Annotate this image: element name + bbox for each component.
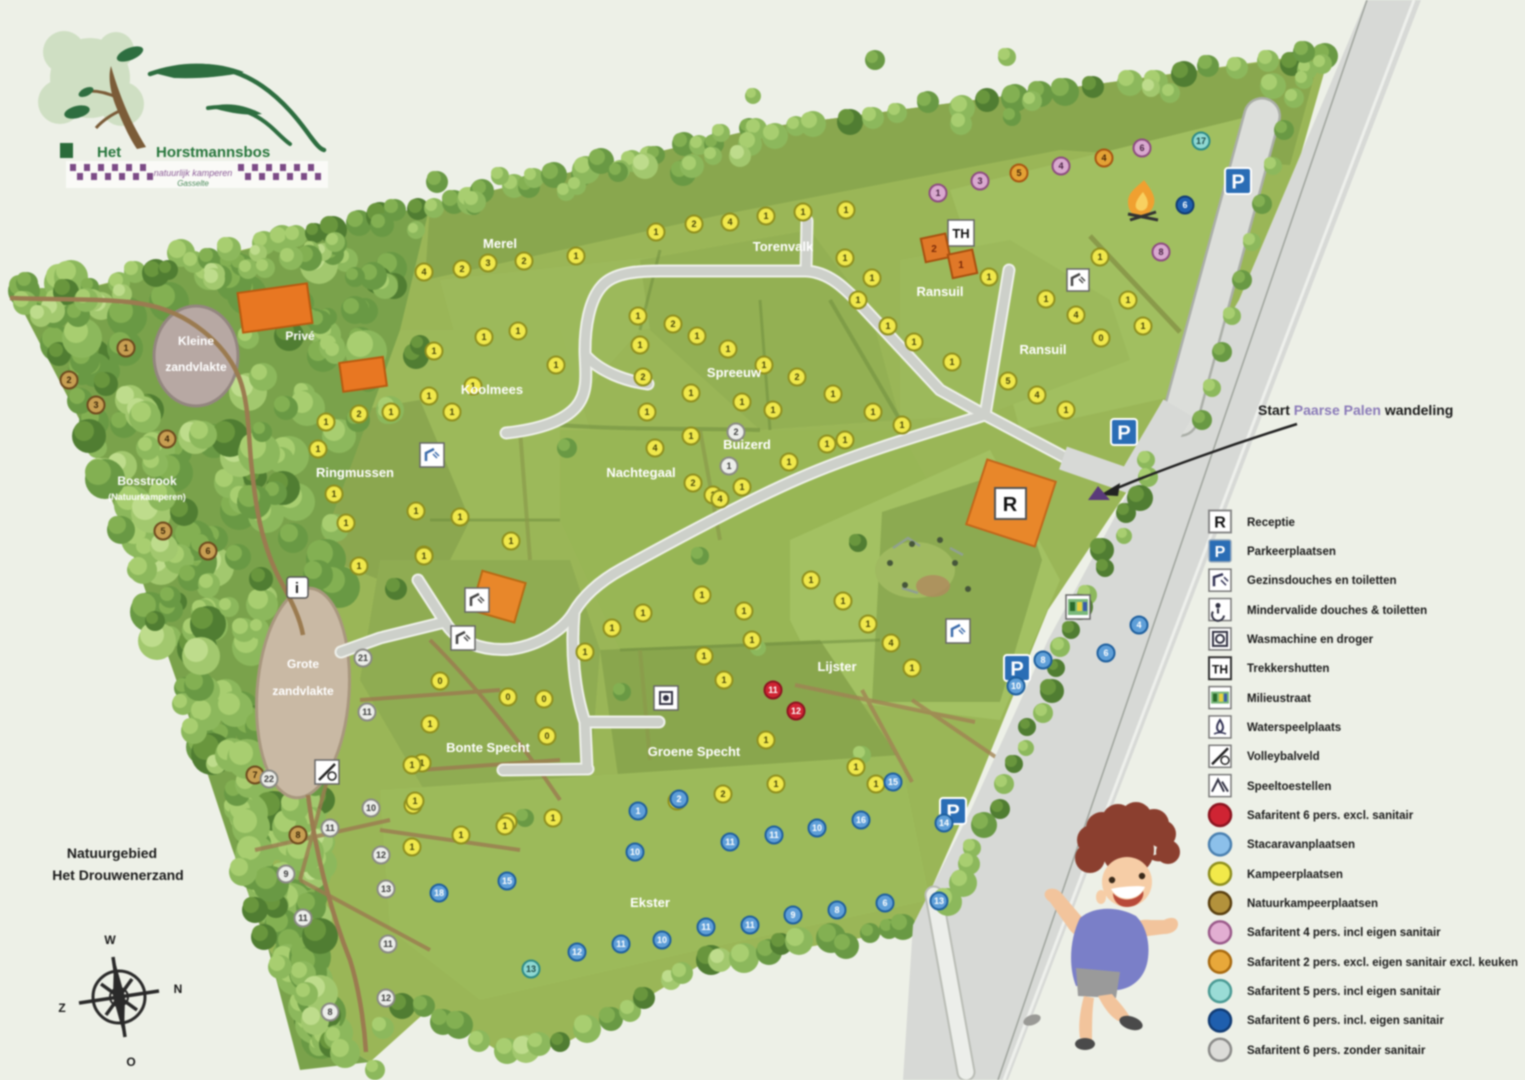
svg-text:Koolmees: Koolmees [461,382,523,397]
svg-text:Stacaravanplaatsen: Stacaravanplaatsen [1247,839,1355,851]
svg-text:2: 2 [733,427,738,437]
svg-text:1: 1 [770,405,775,415]
svg-text:1: 1 [635,806,640,816]
svg-text:2: 2 [670,319,675,329]
svg-text:11: 11 [745,920,755,930]
svg-text:Buizerd: Buizerd [723,437,771,452]
svg-text:2: 2 [640,372,645,382]
svg-text:6: 6 [1103,648,1108,658]
svg-text:16: 16 [856,815,866,825]
svg-text:Volleybalveld: Volleybalveld [1247,751,1320,763]
svg-text:(Natuurkamperen): (Natuurkamperen) [108,492,186,502]
svg-text:2: 2 [356,409,361,419]
svg-text:1: 1 [413,506,418,516]
svg-text:1: 1 [426,391,431,401]
svg-text:Safaritent 6 pers. excl. sanit: Safaritent 6 pers. excl. sanitair [1247,810,1414,822]
svg-text:4: 4 [1136,620,1141,630]
svg-text:Groene Specht: Groene Specht [648,744,741,759]
svg-text:1: 1 [688,388,693,398]
svg-text:11: 11 [616,939,626,949]
svg-text:9: 9 [283,869,288,879]
svg-text:2: 2 [690,478,695,488]
svg-text:3: 3 [977,176,982,186]
svg-text:1: 1 [840,596,845,606]
svg-text:Ekster: Ekster [630,895,670,910]
svg-text:4: 4 [717,494,722,504]
svg-text:6: 6 [205,546,210,556]
svg-text:Parkeerplaatsen: Parkeerplaatsen [1247,546,1336,558]
svg-text:17: 17 [1196,136,1206,146]
svg-text:1: 1 [582,647,587,657]
svg-text:Lijster: Lijster [817,659,856,674]
svg-text:1: 1 [958,260,964,271]
svg-text:Natuurkampeerplaatsen: Natuurkampeerplaatsen [1247,898,1378,910]
svg-text:4: 4 [1034,390,1039,400]
svg-text:6: 6 [1139,143,1144,153]
svg-text:TH: TH [1212,662,1228,676]
svg-text:Grote: Grote [287,657,319,671]
svg-text:1: 1 [388,407,393,417]
svg-text:Milieustraat: Milieustraat [1247,693,1311,705]
svg-text:1: 1 [1043,294,1048,304]
svg-text:11: 11 [769,830,779,840]
svg-text:4: 4 [888,638,893,648]
svg-text:1: 1 [726,461,731,471]
svg-text:11: 11 [725,837,735,847]
svg-text:1: 1 [885,321,890,331]
svg-text:P: P [1215,544,1226,561]
svg-text:Start Paarse Palen wandeling: Start Paarse Palen wandeling [1258,402,1453,418]
svg-text:P: P [1231,171,1244,193]
svg-text:0: 0 [544,731,549,741]
svg-text:1: 1 [653,227,658,237]
svg-text:18: 18 [434,888,444,898]
svg-text:4: 4 [1058,161,1063,171]
svg-text:1: 1 [739,397,744,407]
svg-text:2: 2 [676,794,681,804]
svg-text:1: 1 [644,407,649,417]
svg-text:4: 4 [1073,310,1078,320]
svg-text:12: 12 [381,993,391,1003]
svg-text:Ringmussen: Ringmussen [316,465,394,480]
svg-text:11: 11 [325,823,335,833]
svg-text:Privé: Privé [285,329,315,343]
svg-text:1: 1 [1097,252,1102,262]
svg-text:1: 1 [356,561,361,571]
svg-text:1: 1 [949,357,954,367]
svg-text:zandvlakte: zandvlakte [272,684,334,698]
svg-text:1: 1 [739,482,744,492]
svg-text:Safaritent 5 pers. incl eigen: Safaritent 5 pers. incl eigen sanitair [1247,986,1441,998]
svg-text:10: 10 [1011,681,1021,691]
svg-text:1: 1 [842,435,847,445]
svg-text:Bosstrook: Bosstrook [117,474,177,488]
svg-text:Het: Het [97,144,121,161]
svg-text:zandvlakte: zandvlakte [165,360,227,374]
svg-text:1: 1 [763,211,768,221]
svg-text:13: 13 [526,964,536,974]
svg-text:1: 1 [1063,405,1068,415]
svg-text:Merel: Merel [483,236,517,251]
svg-text:Kampeerplaatsen: Kampeerplaatsen [1247,869,1343,881]
svg-text:1: 1 [1140,321,1145,331]
svg-text:1: 1 [786,457,791,467]
svg-text:13: 13 [934,896,944,906]
svg-text:3: 3 [93,400,98,410]
svg-text:15: 15 [888,777,898,787]
svg-text:8: 8 [327,1007,332,1017]
svg-text:5: 5 [160,526,165,536]
svg-text:1: 1 [855,295,860,305]
svg-text:1: 1 [824,439,829,449]
svg-text:1: 1 [842,253,847,263]
svg-text:12: 12 [572,947,582,957]
svg-text:1: 1 [123,343,128,353]
svg-text:14: 14 [939,818,949,828]
svg-text:Horstmannsbos: Horstmannsbos [156,144,270,161]
svg-text:1: 1 [609,623,614,633]
svg-text:W: W [104,933,116,947]
svg-text:Safaritent 4 pers. incl eigen: Safaritent 4 pers. incl eigen sanitair [1247,927,1441,939]
svg-text:Nachtegaal: Nachtegaal [606,465,675,480]
svg-text:10: 10 [657,935,667,945]
svg-text:10: 10 [630,847,640,857]
svg-text:3: 3 [485,258,490,268]
svg-text:1: 1 [323,417,328,427]
svg-text:1: 1 [763,735,768,745]
svg-text:natuurlijk kamperen: natuurlijk kamperen [154,168,233,178]
svg-text:Kleine: Kleine [178,334,214,348]
svg-text:Safaritent 2 pers. excl. eigen: Safaritent 2 pers. excl. eigen sanitair … [1247,957,1518,969]
svg-text:15: 15 [502,876,512,886]
svg-text:6: 6 [882,898,887,908]
svg-text:1: 1 [553,360,558,370]
svg-text:O: O [126,1055,135,1069]
svg-text:i: i [295,580,299,597]
svg-text:4: 4 [652,443,657,453]
svg-text:1: 1 [899,420,904,430]
svg-text:4: 4 [1101,153,1106,163]
svg-text:5: 5 [1016,168,1021,178]
svg-text:1: 1 [409,842,414,852]
svg-text:4: 4 [421,267,426,277]
svg-text:1: 1 [935,188,940,198]
svg-text:8: 8 [834,905,839,915]
svg-text:1: 1 [865,619,870,629]
svg-text:1: 1 [869,273,874,283]
svg-text:1: 1 [635,311,640,321]
svg-text:1: 1 [431,346,436,356]
svg-text:Trekkershutten: Trekkershutten [1247,663,1329,675]
svg-text:N: N [174,982,183,996]
svg-text:11: 11 [298,913,308,923]
svg-text:4: 4 [164,434,169,444]
svg-text:2: 2 [931,244,937,255]
svg-text:1: 1 [873,779,878,789]
svg-text:1: 1 [502,821,507,831]
svg-text:Natuurgebied: Natuurgebied [67,845,157,861]
svg-text:22: 22 [264,774,274,784]
svg-text:Bonte Specht: Bonte Specht [446,740,530,755]
svg-text:P: P [1117,422,1130,444]
svg-text:1: 1 [640,608,645,618]
svg-text:9: 9 [790,910,795,920]
svg-text:1: 1 [1125,295,1130,305]
svg-text:1: 1 [427,719,432,729]
svg-text:1: 1 [909,663,914,673]
svg-text:2: 2 [720,789,725,799]
svg-text:1: 1 [688,431,693,441]
svg-text:7: 7 [252,770,257,780]
svg-text:R: R [1214,515,1226,532]
svg-text:1: 1 [749,635,754,645]
svg-text:Het Drouwenerzand: Het Drouwenerzand [52,867,183,883]
svg-text:1: 1 [725,344,730,354]
svg-text:11: 11 [362,707,372,717]
svg-text:Ransuil: Ransuil [917,284,964,299]
svg-text:1: 1 [699,590,704,600]
svg-text:6: 6 [1182,200,1187,210]
svg-text:1: 1 [773,779,778,789]
svg-text:Gasselte: Gasselte [177,179,209,188]
svg-text:4: 4 [727,217,732,227]
svg-text:11: 11 [383,939,393,949]
svg-text:Mindervalide douches & toilett: Mindervalide douches & toiletten [1247,605,1427,617]
svg-text:Receptie: Receptie [1247,517,1295,529]
svg-text:TH: TH [952,226,969,241]
svg-text:2: 2 [521,256,526,266]
svg-text:0: 0 [541,694,546,704]
svg-text:1: 1 [343,518,348,528]
svg-text:R: R [1003,494,1018,516]
svg-text:1: 1 [458,830,463,840]
svg-text:1: 1 [741,606,746,616]
svg-text:1: 1 [701,651,706,661]
svg-text:2: 2 [66,375,71,385]
svg-text:1: 1 [515,326,520,336]
svg-text:0: 0 [1098,333,1103,343]
svg-text:8: 8 [1158,247,1163,257]
svg-text:1: 1 [508,536,513,546]
svg-text:1: 1 [457,512,462,522]
svg-text:1: 1 [761,360,766,370]
svg-text:1: 1 [694,331,699,341]
svg-text:1: 1 [573,251,578,261]
svg-text:1: 1 [481,332,486,342]
svg-text:5: 5 [1005,376,1010,386]
svg-text:0: 0 [505,692,510,702]
svg-text:2: 2 [691,219,696,229]
svg-text:1: 1 [331,489,336,499]
svg-text:1: 1 [421,551,426,561]
svg-text:Gezinsdouches en toiletten: Gezinsdouches en toiletten [1247,575,1397,587]
svg-text:1: 1 [315,444,320,454]
svg-text:Wasmachine en droger: Wasmachine en droger [1247,634,1374,646]
svg-text:10: 10 [366,803,376,813]
svg-text:1: 1 [808,575,813,585]
svg-text:1: 1 [911,337,916,347]
svg-text:1: 1 [637,340,642,350]
svg-text:1: 1 [986,272,991,282]
svg-text:13: 13 [381,884,391,894]
svg-text:2: 2 [794,372,799,382]
svg-text:1: 1 [409,760,414,770]
svg-text:Waterspeelplaats: Waterspeelplaats [1247,722,1341,734]
svg-text:21: 21 [358,653,368,663]
svg-text:1: 1 [830,389,835,399]
svg-text:1: 1 [412,796,417,806]
svg-text:12: 12 [791,706,801,716]
svg-text:8: 8 [1040,655,1045,665]
svg-text:Torenvalk: Torenvalk [753,239,814,254]
svg-text:Safaritent 6 pers. zonder sani: Safaritent 6 pers. zonder sanitair [1247,1045,1426,1057]
svg-text:Ransuil: Ransuil [1020,342,1067,357]
svg-text:1: 1 [721,675,726,685]
svg-text:1: 1 [853,762,858,772]
svg-text:Z: Z [58,1001,65,1015]
svg-text:1: 1 [800,207,805,217]
svg-text:0: 0 [437,676,442,686]
svg-text:11: 11 [701,922,711,932]
svg-text:2: 2 [459,264,464,274]
svg-text:1: 1 [550,813,555,823]
svg-text:Spreeuw: Spreeuw [707,365,762,380]
svg-text:Speeltoestellen: Speeltoestellen [1247,781,1331,793]
svg-text:10: 10 [812,823,822,833]
svg-text:Safaritent 6 pers. incl. eigen: Safaritent 6 pers. incl. eigen sanitair [1247,1015,1444,1027]
svg-text:1: 1 [870,407,875,417]
svg-text:1: 1 [843,205,848,215]
svg-text:8: 8 [295,830,300,840]
svg-text:11: 11 [768,685,778,695]
svg-text:12: 12 [376,850,386,860]
svg-text:1: 1 [449,407,454,417]
